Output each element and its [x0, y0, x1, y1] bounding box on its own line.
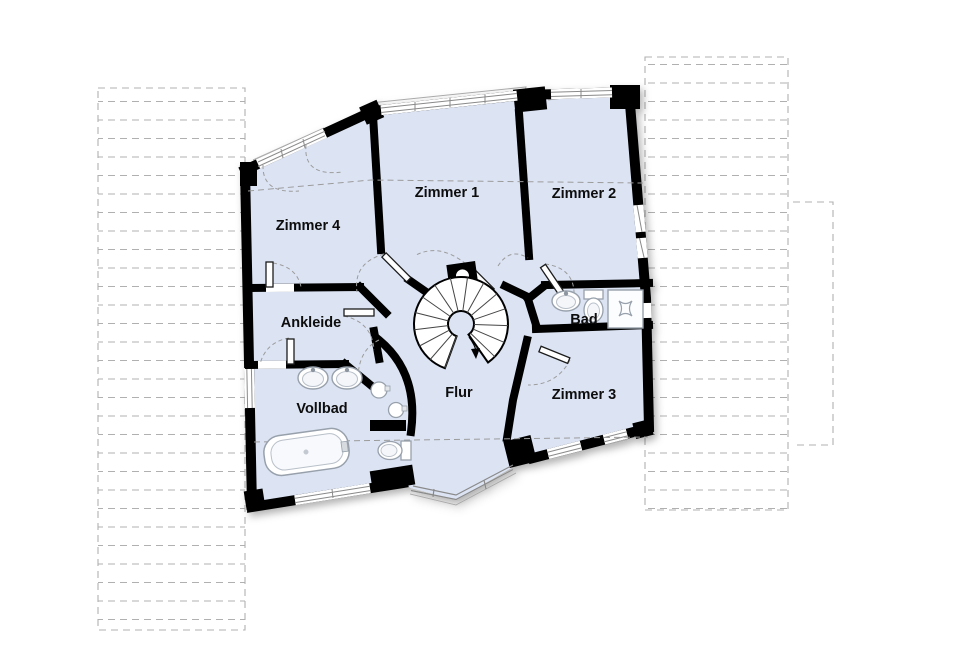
roof-area-right — [645, 57, 788, 510]
door-leaf-ankleide — [344, 309, 374, 316]
roof-area-left — [98, 88, 245, 630]
shower-icon — [608, 290, 643, 328]
door-jamb-zimmer4 — [266, 262, 273, 287]
label-zimmer1: Zimmer 1 — [415, 185, 479, 201]
wall-z2-bad — [545, 283, 649, 285]
door-jamb-vollbad — [287, 339, 294, 364]
floor-plan-canvas: Zimmer 1 Zimmer 2 Zimmer 4 Ankleide Bad … — [0, 0, 960, 667]
washbasin-icon — [552, 291, 580, 311]
roof-outline-right — [793, 202, 833, 445]
label-zimmer2: Zimmer 2 — [552, 186, 616, 202]
label-flur: Flur — [445, 385, 473, 401]
label-vollbad: Vollbad — [296, 401, 347, 417]
toilet-icon — [378, 441, 411, 460]
building: Zimmer 1 Zimmer 2 Zimmer 4 Ankleide Bad … — [240, 85, 654, 510]
washbasin-icon — [298, 367, 328, 389]
label-zimmer4: Zimmer 4 — [276, 218, 340, 234]
wall-wc-divider — [370, 420, 406, 431]
label-zimmer3: Zimmer 3 — [552, 387, 616, 403]
label-ankleide: Ankleide — [281, 315, 341, 331]
floor-plan-page: Zimmer 1 Zimmer 2 Zimmer 4 Ankleide Bad … — [0, 0, 960, 667]
washbasin-icon — [332, 367, 362, 389]
label-bad: Bad — [570, 312, 597, 328]
